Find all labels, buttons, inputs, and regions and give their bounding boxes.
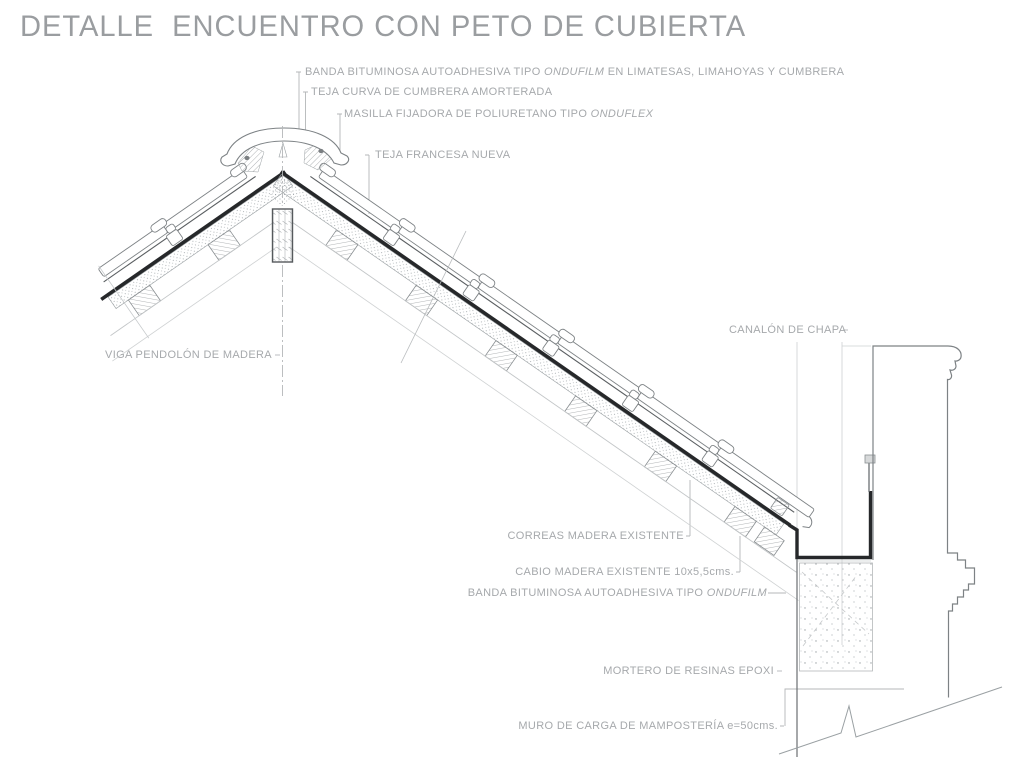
label-correas: CORREAS MADERA EXISTENTE [508, 530, 685, 542]
label-cabio: CABIO MADERA EXISTENTE 10x5,5cms. [515, 566, 734, 578]
label-mortero: MORTERO DE RESINAS EPOXI [603, 665, 774, 677]
brand-name: ONDUFILM [707, 587, 767, 599]
king-post [273, 209, 293, 262]
mortar-block [800, 563, 873, 671]
brand-name: ONDUFLEX [591, 108, 654, 120]
label-text: EN LIMATESAS, LIMAHOYAS Y CUMBRERA [604, 66, 844, 78]
label-teja-francesa: TEJA FRANCESA NUEVA [375, 149, 510, 161]
label-text: BANDA BITUMINOSA AUTOADHESIVA TIPO [468, 587, 707, 599]
drawing-canvas: DETALLE ENCUENTRO CON PETO DE CUBIERTA [0, 0, 1024, 771]
label-masilla: MASILLA FIJADORA DE POLIURETANO TIPO OND… [344, 108, 653, 120]
label-muro: MURO DE CARGA DE MAMPOSTERÍA e=50cms. [518, 720, 778, 732]
label-teja-curva: TEJA CURVA DE CUMBRERA AMORTERADA [311, 86, 552, 98]
ground-break-line [779, 687, 1002, 754]
label-banda-cumbrera: BANDA BITUMINOSA AUTOADHESIVA TIPO ONDUF… [305, 66, 844, 78]
label-text: BANDA BITUMINOSA AUTOADHESIVA TIPO [305, 66, 544, 78]
label-viga-pendolon: VIGA PENDOLÓN DE MADERA [105, 349, 272, 361]
label-canalon: CANALÓN DE CHAPA [729, 324, 846, 336]
brand-name: ONDUFILM [544, 66, 604, 78]
label-text: MASILLA FIJADORA DE POLIURETANO TIPO [344, 108, 591, 120]
parapet-wall-outline [873, 346, 975, 698]
label-banda-eaves: BANDA BITUMINOSA AUTOADHESIVA TIPO ONDUF… [468, 587, 767, 599]
ridge-sealant [279, 143, 287, 157]
